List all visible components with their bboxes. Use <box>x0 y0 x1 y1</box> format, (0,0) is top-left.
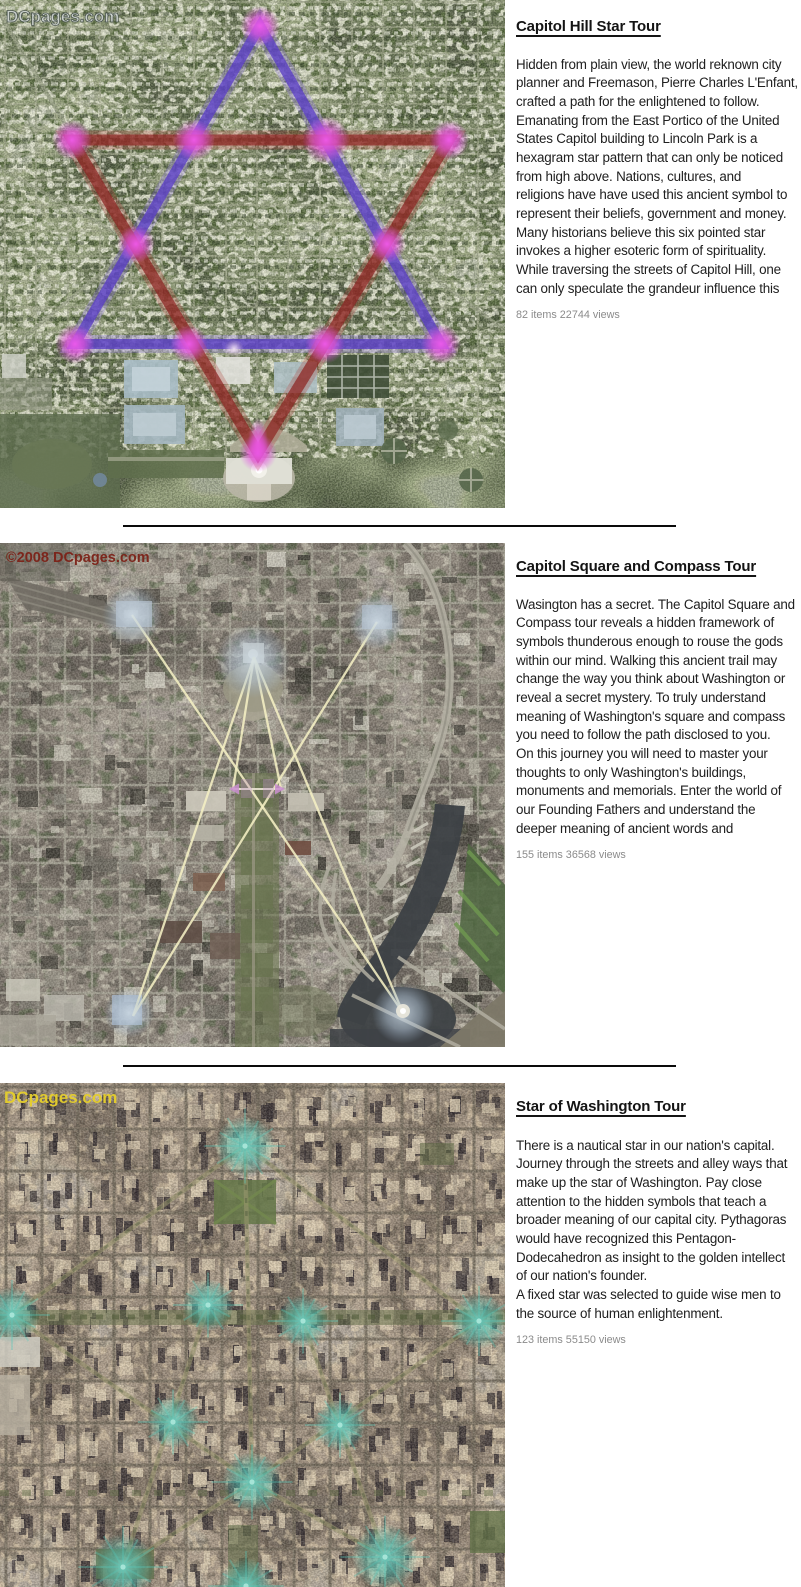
svg-text:©2008 DCpages.com: ©2008 DCpages.com <box>6 550 150 566</box>
svg-text:DCpages.com: DCpages.com <box>4 1088 117 1107</box>
svg-text:DCpages.com: DCpages.com <box>6 7 119 26</box>
